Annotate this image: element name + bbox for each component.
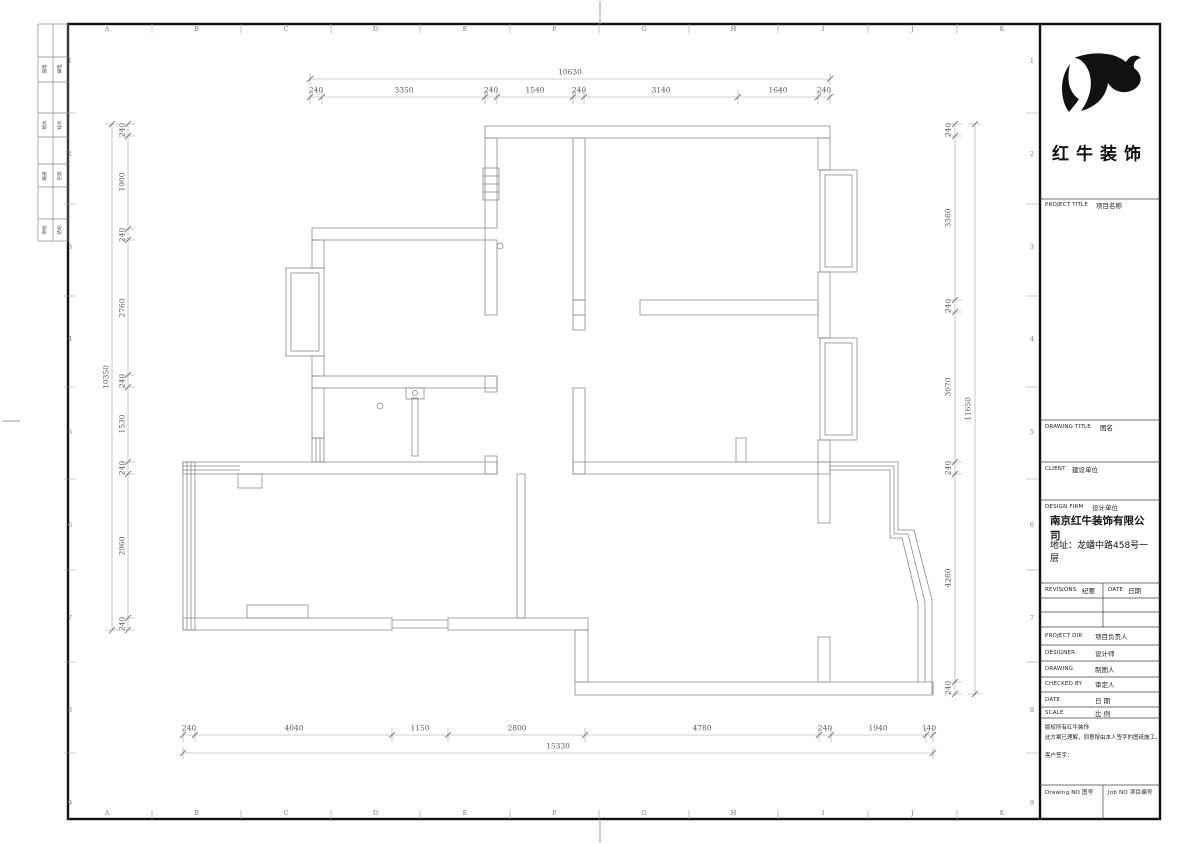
grid-letter: H	[719, 809, 749, 817]
project-dir-label-cn: 项目负责人	[1095, 631, 1128, 641]
drawing-title-label-cn: 图名	[1100, 422, 1113, 432]
dim-label: 240	[182, 724, 196, 733]
dim-label: 3360	[944, 208, 953, 227]
dim-label: 240	[944, 461, 953, 475]
project-title-label-cn: 项目名称	[1096, 200, 1122, 210]
designer-label-cn: 设计师	[1095, 648, 1115, 658]
grid-numbers-left: 1 2 3 4 5 6 7 8 9	[64, 57, 76, 809]
dim-label: 1900	[118, 172, 127, 191]
grid-letter: I	[808, 25, 838, 33]
dimension-ticks	[109, 76, 978, 756]
checked-by-label: CHECKED BY	[1045, 681, 1082, 687]
dim-label: 240	[484, 86, 498, 95]
dim-label: 240	[118, 228, 127, 242]
grid-letter: A	[92, 25, 122, 33]
client-label: CLIENT	[1045, 466, 1066, 472]
grid-number: 3	[64, 243, 76, 253]
dimension-lines	[105, 73, 982, 759]
grid-letter: A	[92, 809, 122, 817]
strip-label: 结构	[57, 226, 63, 235]
bull-logo-icon	[1062, 53, 1141, 112]
strip-label: 给水	[42, 121, 48, 130]
dim-label: 140	[922, 724, 936, 733]
grid-number: 4	[1026, 335, 1038, 345]
grid-number: 2	[64, 150, 76, 160]
grid-number: 5	[1026, 428, 1038, 438]
dim-label: 3070	[944, 377, 953, 396]
grid-number: 8	[1026, 706, 1038, 716]
company-address: 地址：龙蟠中路458号一层	[1050, 538, 1150, 564]
grid-number: 4	[64, 335, 76, 345]
dim-label: 240	[309, 86, 323, 95]
grid-number: 3	[1026, 243, 1038, 253]
client-label-cn: 建设单位	[1072, 464, 1098, 474]
grid-letter: C	[271, 809, 301, 817]
date-label: DATE	[1045, 697, 1060, 703]
date-hdr-label: DATE	[1108, 587, 1123, 593]
job-no-label: Job NO 项目编号	[1108, 788, 1153, 796]
grid-letters-top: A B C D E F G H I J K	[92, 25, 1017, 33]
design-firm-label: DESIGN FIRM	[1045, 504, 1084, 510]
dim-label: 240	[118, 461, 127, 475]
strip-label: 空调	[57, 172, 63, 181]
sheet-border	[68, 24, 1160, 819]
grid-letter: D	[361, 809, 391, 817]
grid-letter: J	[898, 809, 928, 817]
grid-letter: C	[271, 25, 301, 33]
dim-label: 240	[944, 123, 953, 137]
copyright-line2: 此方案已理解，同意按由本人签字的图纸施工。	[1045, 733, 1161, 741]
dim-total-top: 10630	[558, 68, 582, 77]
revisions-label-cn: 纪要	[1082, 585, 1095, 595]
scale-label: SCALE	[1045, 710, 1064, 716]
drawing-label-cn: 制图人	[1095, 664, 1115, 674]
grid-letter: K	[987, 25, 1017, 33]
grid-number: 1	[64, 57, 76, 67]
dim-label: 2760	[118, 298, 127, 317]
grid-number: 2	[1026, 150, 1038, 160]
copyright-line1: 版权所有红牛装饰	[1045, 723, 1089, 731]
dim-total-bottom: 15330	[546, 742, 570, 751]
grid-number: 9	[1026, 799, 1038, 809]
grid-letter: E	[450, 809, 480, 817]
customer-signature-label: 客户签字：	[1045, 751, 1073, 759]
dim-label: 240	[118, 123, 127, 137]
dim-label: 240	[817, 86, 831, 95]
grid-letter: B	[182, 809, 212, 817]
checked-by-label-cn: 审定人	[1095, 679, 1115, 689]
designer-label: DESIGNER	[1045, 650, 1075, 656]
date-hdr-label-cn: 日期	[1128, 585, 1141, 595]
grid-number: 7	[1026, 614, 1038, 624]
grid-letter: I	[808, 809, 838, 817]
grid-number: 6	[64, 521, 76, 531]
grid-letter: H	[719, 25, 749, 33]
grid-letter: F	[540, 25, 570, 33]
grid-number: 9	[64, 799, 76, 809]
grid-letter: B	[182, 25, 212, 33]
dim-label: 240	[944, 299, 953, 313]
strip-label: 强电	[42, 65, 48, 74]
grid-letter: J	[898, 25, 928, 33]
grid-letter: G	[629, 809, 659, 817]
dim-label: 240	[572, 86, 586, 95]
dim-label: 2800	[507, 724, 526, 733]
project-dir-label: PROJECT DIR	[1045, 633, 1082, 639]
dim-label: 240	[818, 724, 832, 733]
dim-label: 4780	[692, 724, 711, 733]
grid-number: 8	[64, 706, 76, 716]
dim-label: 1940	[868, 724, 887, 733]
strip-label: 弱电	[57, 65, 63, 74]
date-label-cn: 日 期	[1095, 695, 1110, 705]
dim-label: 1150	[410, 724, 429, 733]
grid-letter: K	[987, 809, 1017, 817]
drawing-label: DRAWING	[1045, 666, 1073, 672]
grid-letter: E	[450, 25, 480, 33]
dim-label: 1640	[768, 86, 787, 95]
grid-number: 5	[64, 428, 76, 438]
dim-label: 3350	[394, 86, 413, 95]
dim-total-right: 11650	[964, 397, 973, 421]
grid-numbers-right: 1 2 3 4 5 6 7 8 9	[1026, 57, 1038, 809]
dim-label: 240	[118, 617, 127, 631]
drawing-no-label: Drawing NO 图号	[1045, 788, 1093, 796]
dim-label: 240	[118, 374, 127, 388]
dim-label: 3140	[651, 86, 670, 95]
strip-label: 排水	[57, 121, 63, 130]
grid-ticks	[64, 24, 1038, 819]
grid-letter: F	[540, 809, 570, 817]
dim-label: 4040	[284, 724, 303, 733]
brand-name: 红牛装饰	[1052, 140, 1148, 165]
grid-letters-bottom: A B C D E F G H I J K	[92, 809, 1017, 817]
floor-plan-svg	[0, 0, 1200, 844]
scale-label-cn: 比 例	[1095, 708, 1110, 718]
dim-label: 4260	[944, 568, 953, 587]
grid-number: 1	[1026, 57, 1038, 67]
strip-label: 原始	[42, 226, 48, 235]
revisions-label: REVISIONS	[1045, 587, 1077, 593]
grid-number: 6	[1026, 521, 1038, 531]
strip-label: 暖通	[42, 172, 48, 181]
grid-letter: D	[361, 25, 391, 33]
grid-letter: G	[629, 25, 659, 33]
fold-marks	[2, 1, 600, 843]
dim-label: 240	[944, 681, 953, 695]
dim-total-left: 10350	[102, 365, 111, 389]
dim-label: 1540	[525, 86, 544, 95]
drawing-title-label: DRAWING TITLE	[1045, 424, 1091, 430]
dim-label: 2960	[118, 536, 127, 555]
dim-label: 1530	[118, 414, 127, 433]
grid-number: 7	[64, 614, 76, 624]
design-firm-label-cn: 设计单位	[1092, 502, 1118, 512]
plan-walls	[183, 126, 933, 695]
project-title-label: PROJECT TITLE	[1045, 202, 1088, 208]
drawing-sheet: A B C D E F G H I J K A B C D E F G H I …	[0, 0, 1200, 844]
